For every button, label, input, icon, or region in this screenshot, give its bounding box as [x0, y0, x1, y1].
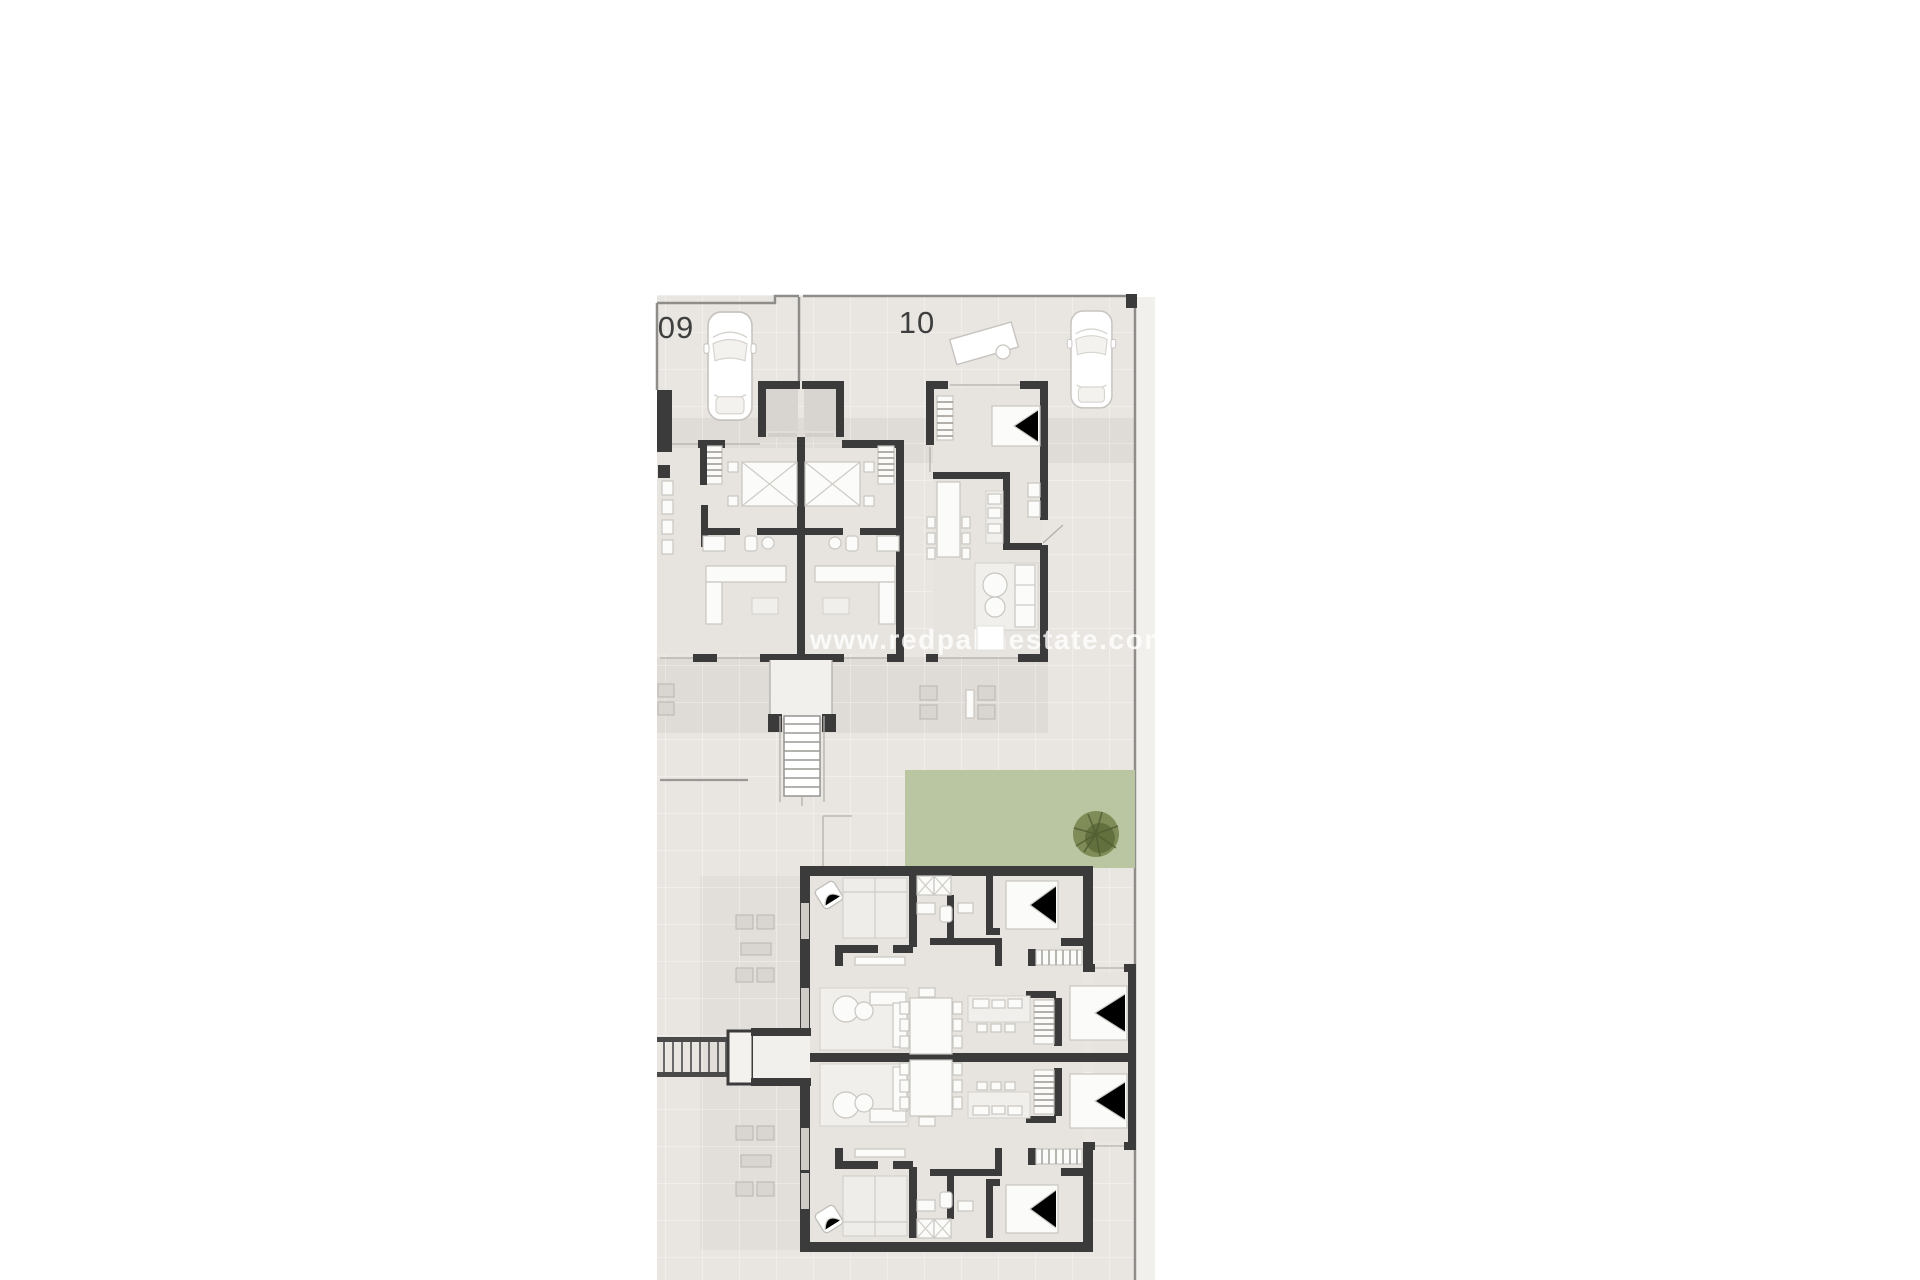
bed-icon-apt-top-mid: [1006, 881, 1058, 929]
ottoman-over-watermark: [977, 626, 1004, 650]
cut-wall-stub: [658, 465, 670, 478]
desk-top: [855, 957, 905, 965]
stair-hatch-apt-top: [1034, 1000, 1054, 1044]
wardrobe-top: [1036, 950, 1082, 965]
shower-icon-bottom: [917, 1219, 951, 1238]
floor-plan-page: 09 10: [0, 0, 1920, 1280]
sofa-icon-apt-bottom: [820, 1064, 908, 1126]
cut-wall-left: [657, 390, 672, 452]
bed-icon-apt-bottom-left: [843, 1176, 907, 1236]
tilted-table-stool: [996, 345, 1010, 359]
pavement-right-sliver: [1135, 297, 1155, 1280]
bed-icon-apt-bottom-mid: [1006, 1185, 1058, 1233]
floor-plan-canvas: 09 10: [0, 0, 1920, 1280]
bed-icon-apt-bottom-wing: [1070, 1074, 1127, 1128]
stair-hatch-pair: [878, 446, 894, 484]
bed-icon-apt-top-left: [843, 878, 907, 938]
bed-icon-apt-top-wing: [1070, 986, 1127, 1040]
sofa-icon-apt-top: [820, 988, 908, 1050]
kitchen-icon-10: [986, 491, 1003, 543]
car-unit-10: [1067, 311, 1115, 408]
shower-icon-top: [917, 876, 951, 895]
car-unit-09: [704, 312, 756, 420]
wardrobe-bottom: [1036, 1149, 1082, 1164]
stair-hatch-10: [937, 396, 953, 440]
palm-tree-icon: [1073, 811, 1119, 857]
unit-label-10: 10: [899, 305, 935, 340]
desk-bottom: [855, 1149, 905, 1157]
sofa-icon-10: [975, 563, 1038, 630]
bed-icon-10: [992, 406, 1040, 446]
boundary-corner-post: [1126, 294, 1137, 308]
stair-hatch-apt-bottom: [1034, 1070, 1054, 1114]
party-wall: [797, 437, 805, 662]
stair-hatch-09: [700, 440, 722, 485]
unit-label-09: 09: [658, 310, 694, 345]
